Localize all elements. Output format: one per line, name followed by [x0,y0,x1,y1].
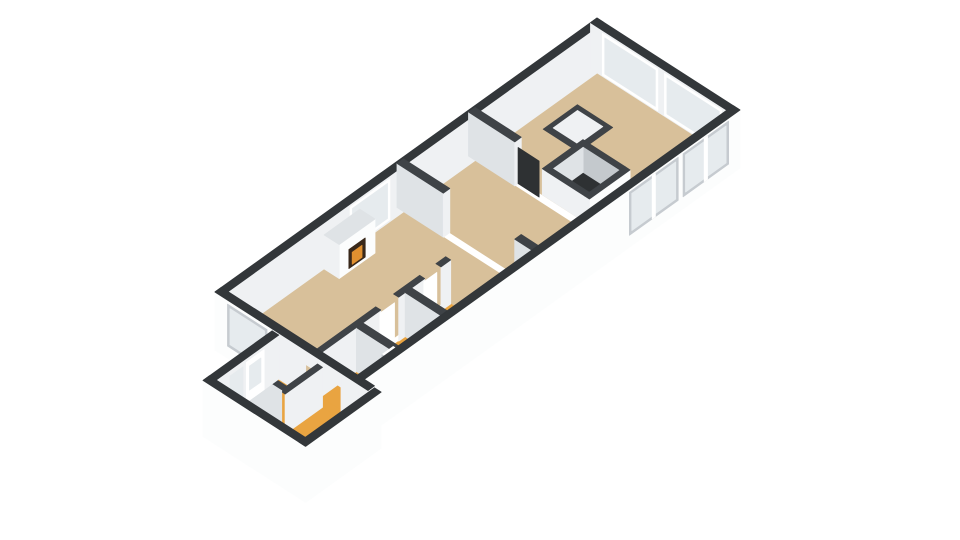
window-se-mullion-2 [652,174,655,219]
window-se-mullion-1 [704,136,707,181]
wall-divider-stub1-end-face [443,189,450,238]
floorplan-3d-render [0,0,960,540]
floorplan-page [0,0,960,540]
wall-hall-face-a [441,260,451,311]
